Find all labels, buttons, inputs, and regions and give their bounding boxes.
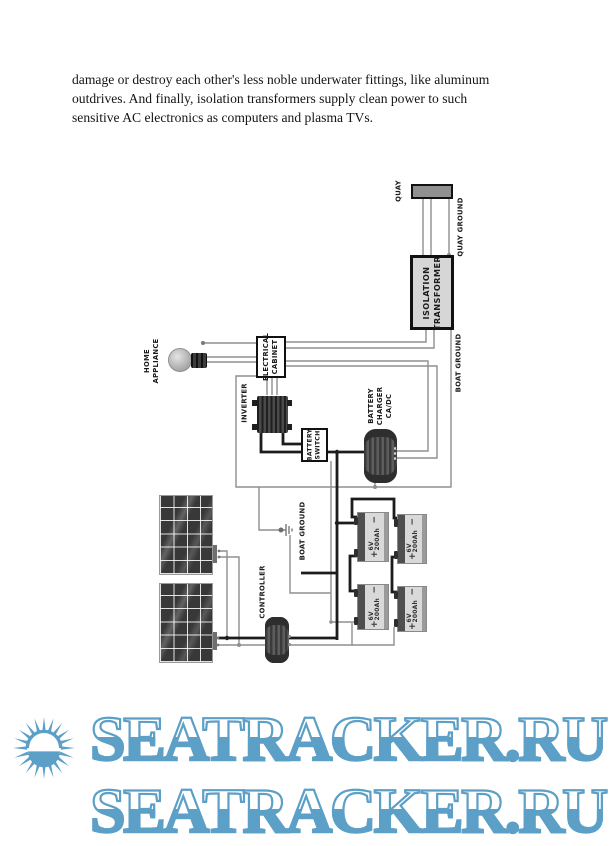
home-appliance-label: HOME APPLIANCE bbox=[143, 339, 161, 384]
solar-panel-1 bbox=[159, 495, 213, 575]
battery-terminal bbox=[394, 619, 398, 627]
light-bulb-icon bbox=[168, 348, 192, 372]
battery-6v: +6V 200Ah− bbox=[357, 584, 389, 630]
battery-charger-device bbox=[364, 429, 397, 483]
minus-sign: − bbox=[370, 586, 379, 594]
battery-switch-box: BATTERY SWITCH bbox=[301, 428, 328, 462]
battery-terminal bbox=[354, 617, 358, 625]
watermark-text-partial: SEATRACKER.RU bbox=[90, 779, 606, 843]
quay-dock bbox=[411, 184, 453, 199]
plus-sign: + bbox=[409, 552, 418, 560]
charger-terminal bbox=[394, 457, 397, 460]
minus-sign: − bbox=[370, 516, 379, 524]
battery-terminal bbox=[354, 517, 358, 525]
battery-terminal bbox=[354, 589, 358, 597]
bulb-socket bbox=[191, 353, 207, 368]
controller-device bbox=[265, 617, 289, 663]
battery-cap bbox=[422, 515, 426, 563]
watermark-text: SEATRACKER.RU bbox=[90, 707, 606, 771]
charger-terminal bbox=[394, 452, 397, 455]
plus-sign: + bbox=[370, 550, 379, 558]
inverter-leg bbox=[252, 400, 257, 406]
electrical-cabinet-box: ELECTRICAL CABINET bbox=[256, 336, 286, 378]
isolation-transformer-box: ISOLATION TRANSFORMER bbox=[410, 255, 454, 330]
controller-terminal bbox=[288, 635, 291, 638]
battery-6v: +6V 200Ah− bbox=[357, 512, 389, 562]
ground-symbol bbox=[283, 524, 292, 536]
electrical-cabinet-label: ELECTRICAL CABINET bbox=[262, 333, 280, 381]
inverter-label: INVERTER bbox=[240, 383, 249, 423]
plus-sign: + bbox=[409, 622, 418, 630]
battery-cap bbox=[398, 587, 405, 631]
panel-bracket bbox=[213, 632, 217, 650]
battery-6v: +6V 200Ah− bbox=[397, 586, 427, 632]
minus-sign: − bbox=[409, 588, 418, 596]
battery-terminal bbox=[354, 549, 358, 557]
panel-bracket bbox=[213, 545, 217, 563]
wiring-layer bbox=[0, 0, 612, 792]
inverter-device bbox=[257, 396, 288, 433]
controller-terminal bbox=[288, 643, 291, 646]
minus-sign: − bbox=[409, 518, 418, 526]
battery-terminal bbox=[394, 591, 398, 599]
battery-cap bbox=[398, 515, 405, 563]
battery-capacity: 6V 200Ah bbox=[407, 596, 419, 623]
quay-ground-label: QUAY GROUND bbox=[456, 197, 465, 256]
quay-label: QUAY bbox=[394, 180, 403, 202]
battery-charger-label: BATTERY CHARGER CA/DC bbox=[367, 387, 395, 425]
battery-capacity: 6V 200Ah bbox=[407, 526, 419, 553]
isolation-transformer-label: ISOLATION TRANSFORMER bbox=[421, 255, 443, 329]
wiring-diagram: QUAY QUAY GROUND ISOLATION TRANSFORMER B… bbox=[0, 0, 612, 792]
inverter-leg bbox=[287, 424, 292, 430]
inverter-leg bbox=[287, 400, 292, 406]
battery-switch-label: BATTERY SWITCH bbox=[306, 429, 323, 462]
inverter-leg bbox=[252, 424, 257, 430]
sun-logo-icon bbox=[2, 706, 86, 790]
boat-ground-house-label: BOAT GROUND bbox=[298, 502, 307, 561]
battery-terminal bbox=[394, 551, 398, 559]
battery-6v: +6V 200Ah− bbox=[397, 514, 427, 564]
battery-terminal bbox=[394, 519, 398, 527]
battery-capacity: 6V 200Ah bbox=[369, 524, 381, 551]
solar-panel-2 bbox=[159, 583, 213, 663]
boat-ground-shore-label: BOAT GROUND bbox=[454, 334, 463, 393]
battery-cap bbox=[358, 585, 365, 629]
battery-cap bbox=[358, 513, 365, 561]
plus-sign: + bbox=[370, 620, 379, 628]
battery-cap bbox=[384, 585, 388, 629]
controller-label: CONTROLLER bbox=[258, 565, 267, 618]
battery-cap bbox=[422, 587, 426, 631]
charger-terminal bbox=[394, 447, 397, 450]
battery-cap bbox=[384, 513, 388, 561]
battery-capacity: 6V 200Ah bbox=[369, 594, 381, 621]
